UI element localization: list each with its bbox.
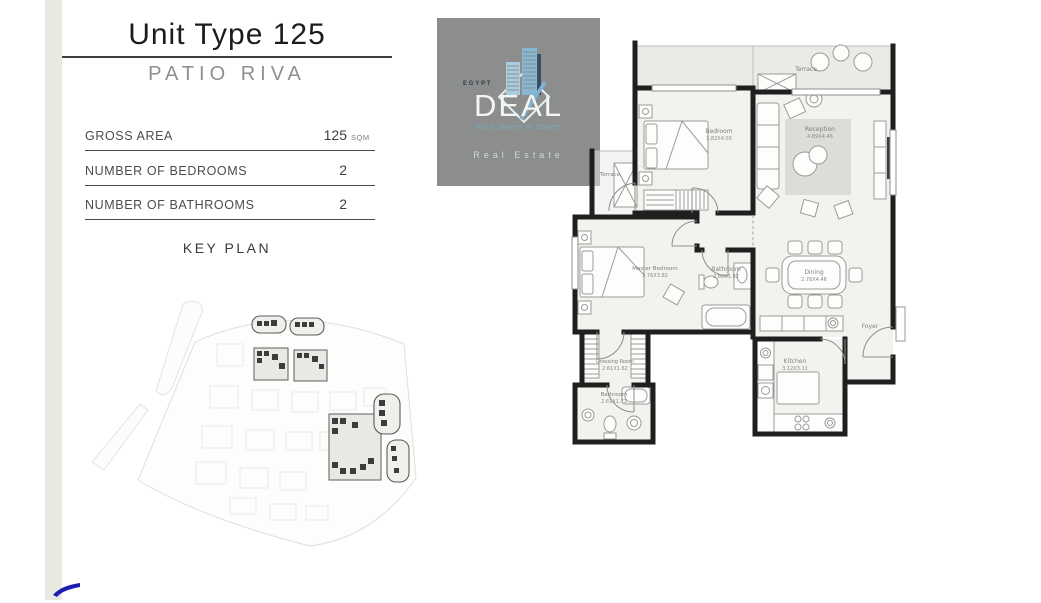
floor-plan: Bedroom 3.82X4.03 Reception 4.89X4.46 Te… [552, 25, 922, 455]
project-name: PATIO RIVA [82, 63, 372, 86]
dims-dressing-room: 2.61X1.62 [602, 366, 628, 372]
spec-label: GROSS AREA [85, 129, 324, 143]
logo-country-label: EGYPT [463, 81, 492, 87]
key-plan-heading: KEY PLAN [62, 240, 392, 256]
spec-label: NUMBER OF BATHROOMS [85, 198, 339, 212]
label-bedroom: Bedroom [705, 128, 732, 135]
flyer-canvas: Unit Type 125 PATIO RIVA GROSS AREA 125 … [0, 0, 1041, 600]
label-bathroom-1: Bathroom [711, 266, 741, 273]
label-master-bedroom: Master Bedroom [632, 266, 677, 272]
spec-value: 125 [324, 127, 347, 143]
dims-reception: 4.89X4.46 [807, 134, 833, 140]
spec-unit: SQM [351, 133, 375, 142]
dims-bathroom-1: 2.60X1.92 [713, 274, 739, 280]
left-accent-bar [45, 0, 62, 600]
key-plan-map [82, 292, 432, 577]
spec-bedrooms: NUMBER OF BEDROOMS 2 [85, 162, 375, 186]
label-reception: Reception [805, 126, 835, 133]
dims-bedroom: 3.82X4.03 [706, 136, 732, 142]
label-dressing-room: Dressing Room [596, 359, 634, 365]
corner-swoosh-icon [52, 582, 82, 598]
page-title: Unit Type 125 [62, 18, 392, 52]
title-divider [62, 56, 392, 58]
spec-value: 2 [339, 162, 347, 178]
dims-dining: 2.76X4.46 [801, 277, 827, 283]
spec-label: NUMBER OF BEDROOMS [85, 164, 339, 178]
label-terrace-top: Terrace [794, 66, 817, 73]
dims-bathroom-2: 2.61X1.71 [601, 399, 627, 405]
label-foyer: Foyer [862, 323, 879, 330]
spec-bathrooms: NUMBER OF BATHROOMS 2 [85, 196, 375, 220]
dims-master-bedroom: 3.76X3.82 [642, 273, 668, 279]
label-kitchen: Kitchen [784, 358, 807, 365]
terrace-balcony [635, 46, 753, 88]
bedroom-furniture [639, 105, 708, 210]
label-bathroom-2: Bathroom [600, 392, 627, 398]
spec-value: 2 [339, 196, 347, 212]
label-terrace-side: Terrace [599, 172, 621, 178]
dims-kitchen: 3.12X3.11 [782, 366, 808, 372]
spec-gross-area: GROSS AREA 125 SQM [85, 127, 375, 151]
label-dining: Dining [804, 269, 824, 276]
